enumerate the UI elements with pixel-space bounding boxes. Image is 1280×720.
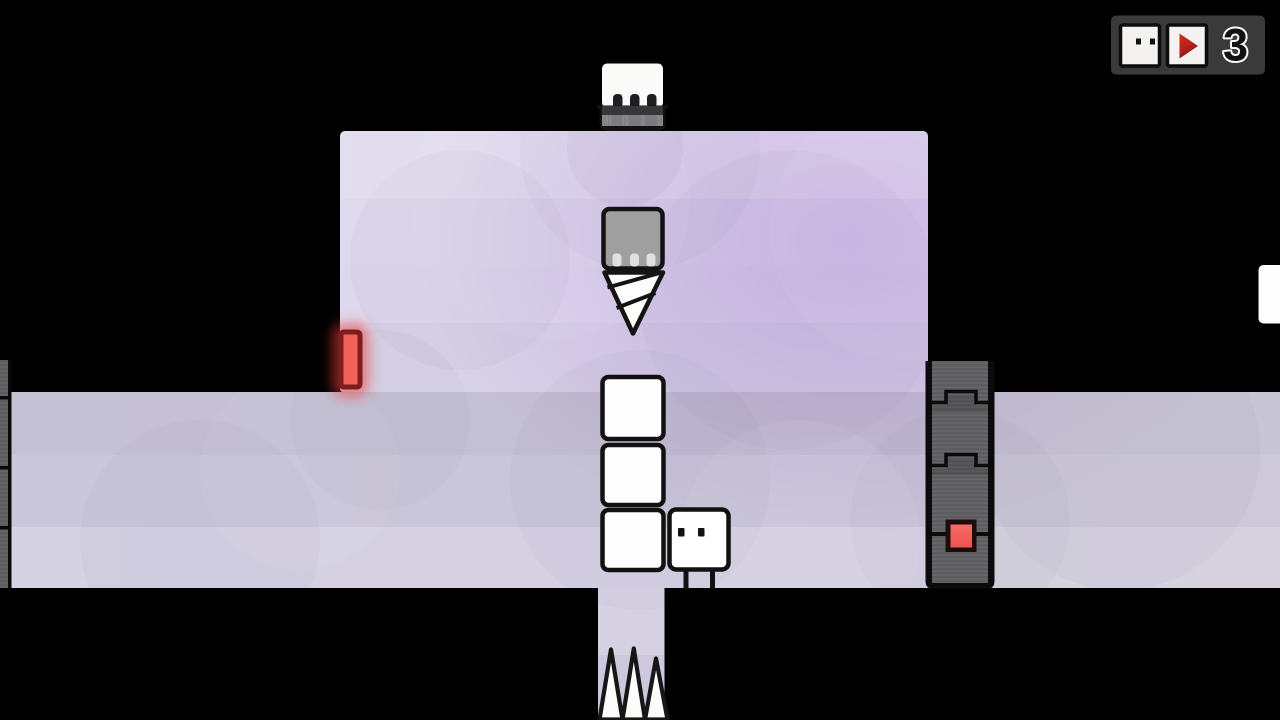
svg-text:3: 3 [1223,20,1248,71]
